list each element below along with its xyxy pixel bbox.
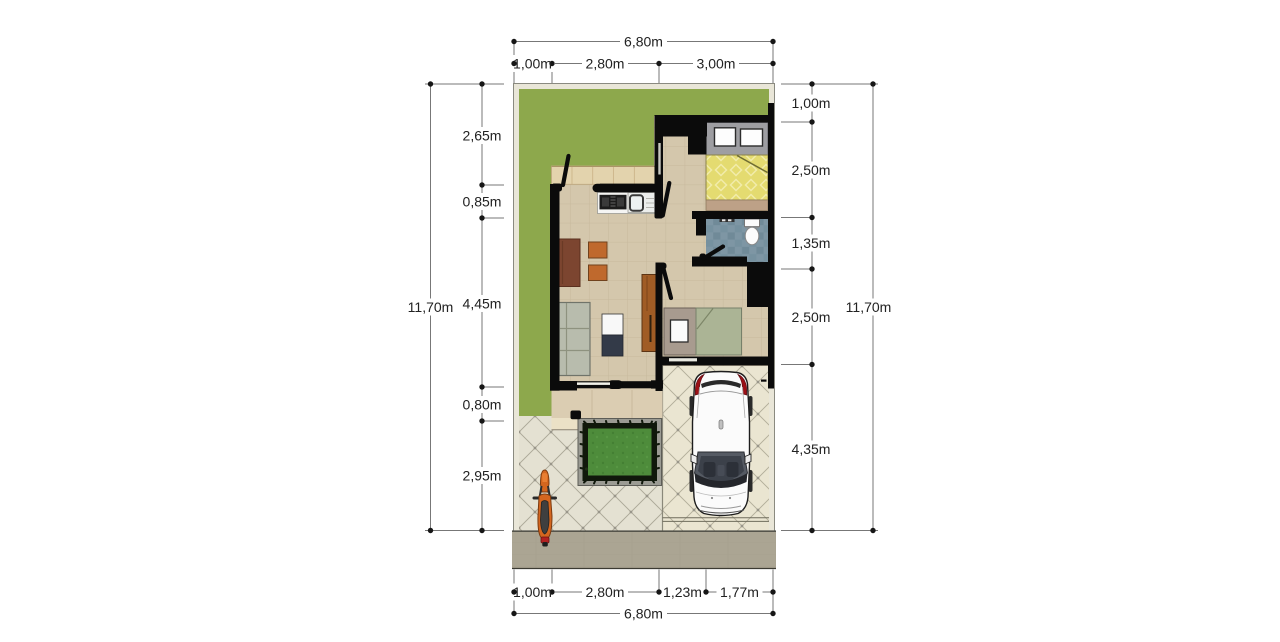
svg-text:2,95m: 2,95m	[463, 468, 502, 484]
svg-text:0,80m: 0,80m	[463, 397, 502, 413]
svg-text:2,80m: 2,80m	[586, 584, 625, 600]
svg-text:1,00m: 1,00m	[792, 95, 831, 111]
svg-text:1,35m: 1,35m	[792, 235, 831, 251]
svg-text:2,50m: 2,50m	[792, 162, 831, 178]
svg-text:0,85m: 0,85m	[463, 194, 502, 210]
svg-text:4,45m: 4,45m	[463, 296, 502, 312]
svg-text:2,50m: 2,50m	[792, 309, 831, 325]
svg-text:1,00m: 1,00m	[513, 584, 552, 600]
svg-text:4,35m: 4,35m	[792, 441, 831, 457]
svg-text:1,23m: 1,23m	[663, 584, 702, 600]
svg-text:11,70m: 11,70m	[846, 299, 892, 315]
svg-text:3,00m: 3,00m	[697, 56, 736, 72]
svg-text:1,00m: 1,00m	[513, 56, 552, 72]
svg-text:11,70m: 11,70m	[408, 299, 454, 315]
svg-text:6,80m: 6,80m	[624, 34, 663, 50]
svg-text:6,80m: 6,80m	[624, 606, 663, 622]
svg-text:1,77m: 1,77m	[720, 584, 759, 600]
svg-text:2,65m: 2,65m	[463, 128, 502, 144]
svg-text:2,80m: 2,80m	[586, 56, 625, 72]
